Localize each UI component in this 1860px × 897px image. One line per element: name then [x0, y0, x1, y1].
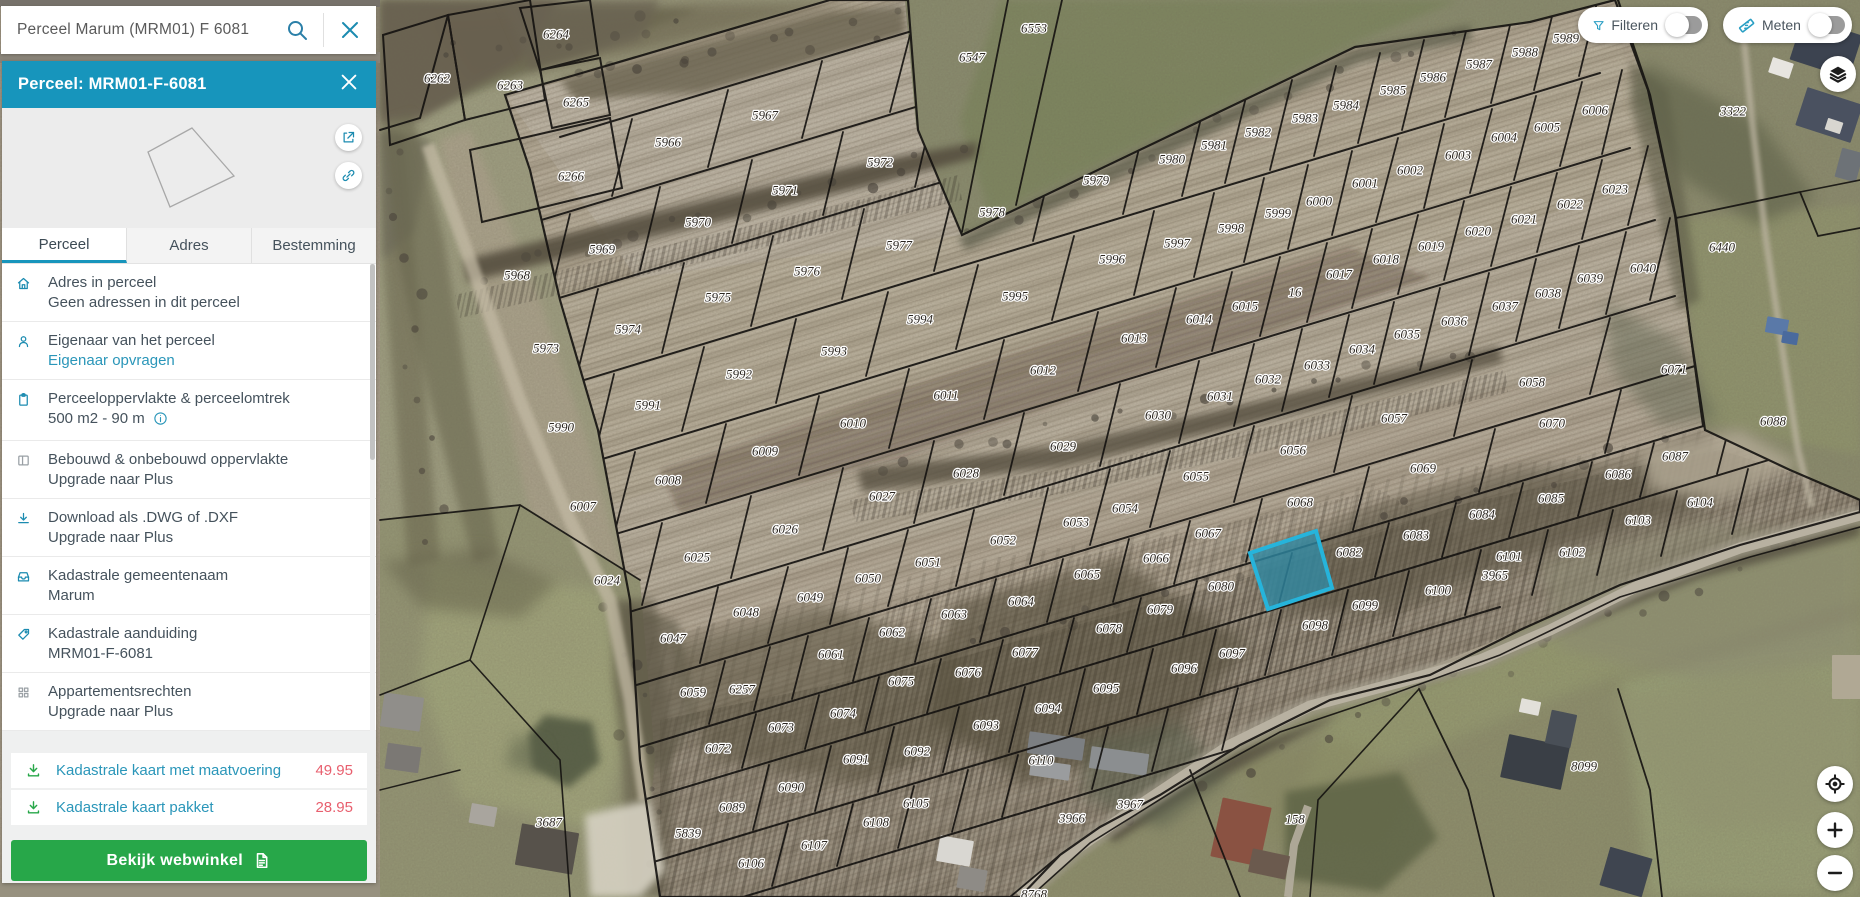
svg-text:6017: 6017: [1326, 267, 1353, 282]
svg-text:5966: 5966: [655, 135, 682, 150]
svg-text:6051: 6051: [915, 555, 941, 570]
svg-text:5977: 5977: [886, 238, 913, 253]
svg-text:5998: 5998: [1218, 221, 1245, 236]
svg-text:6547: 6547: [959, 50, 986, 65]
svg-text:5969: 5969: [589, 242, 616, 257]
svg-text:5982: 5982: [1245, 125, 1272, 140]
svg-text:6074: 6074: [830, 706, 857, 721]
svg-text:3965: 3965: [1481, 568, 1509, 583]
svg-text:6059: 6059: [680, 685, 707, 700]
svg-text:6092: 6092: [904, 744, 931, 759]
svg-text:6093: 6093: [973, 718, 1000, 733]
svg-text:6013: 6013: [1121, 331, 1148, 346]
svg-text:5992: 5992: [726, 367, 753, 382]
svg-text:5839: 5839: [675, 826, 702, 841]
svg-text:6265: 6265: [563, 95, 590, 110]
svg-text:6065: 6065: [1074, 567, 1101, 582]
svg-text:6262: 6262: [424, 71, 451, 86]
svg-text:6072: 6072: [705, 741, 732, 756]
svg-text:5991: 5991: [635, 398, 661, 413]
svg-text:6002: 6002: [1397, 163, 1424, 178]
svg-text:5999: 5999: [1265, 206, 1292, 221]
svg-text:6107: 6107: [801, 838, 828, 853]
svg-text:6100: 6100: [1425, 583, 1452, 598]
svg-text:5988: 5988: [1512, 45, 1539, 60]
svg-text:6073: 6073: [768, 720, 795, 735]
svg-text:6066: 6066: [1143, 551, 1170, 566]
svg-text:6056: 6056: [1280, 443, 1307, 458]
svg-text:6091: 6091: [843, 752, 869, 767]
svg-text:6064: 6064: [1008, 594, 1035, 609]
svg-text:6036: 6036: [1441, 314, 1468, 329]
svg-text:5981: 5981: [1201, 138, 1227, 153]
svg-text:6026: 6026: [772, 522, 799, 537]
svg-text:6029: 6029: [1050, 439, 1077, 454]
svg-text:6264: 6264: [543, 27, 570, 42]
svg-text:6008: 6008: [655, 473, 682, 488]
svg-text:5983: 5983: [1292, 111, 1319, 126]
svg-text:6028: 6028: [953, 466, 980, 481]
svg-text:5993: 5993: [821, 344, 848, 359]
svg-text:5971: 5971: [772, 183, 798, 198]
svg-text:6063: 6063: [941, 607, 968, 622]
svg-text:6023: 6023: [1602, 182, 1629, 197]
svg-text:6011: 6011: [933, 388, 958, 403]
svg-text:6005: 6005: [1534, 120, 1561, 135]
svg-text:6030: 6030: [1145, 408, 1172, 423]
svg-text:8099: 8099: [1571, 759, 1598, 774]
svg-text:5979: 5979: [1083, 173, 1110, 188]
svg-text:6009: 6009: [752, 444, 779, 459]
svg-text:6000: 6000: [1306, 194, 1333, 209]
svg-text:6033: 6033: [1304, 358, 1331, 373]
svg-text:6004: 6004: [1491, 130, 1518, 145]
svg-text:6052: 6052: [990, 533, 1017, 548]
svg-text:5973: 5973: [533, 341, 560, 356]
svg-text:6089: 6089: [719, 800, 746, 815]
svg-text:6007: 6007: [570, 499, 597, 514]
svg-text:6078: 6078: [1096, 621, 1123, 636]
svg-text:6039: 6039: [1577, 271, 1604, 286]
svg-text:6050: 6050: [855, 571, 882, 586]
svg-text:6085: 6085: [1538, 491, 1565, 506]
svg-text:6003: 6003: [1445, 148, 1472, 163]
svg-text:6068: 6068: [1287, 495, 1314, 510]
svg-text:6075: 6075: [888, 674, 915, 689]
svg-text:6014: 6014: [1186, 312, 1213, 327]
svg-text:6086: 6086: [1605, 467, 1632, 482]
svg-text:6106: 6106: [738, 856, 765, 871]
svg-text:3322: 3322: [1719, 104, 1747, 119]
svg-text:5986: 5986: [1420, 70, 1447, 85]
svg-text:6067: 6067: [1195, 526, 1222, 541]
svg-text:5985: 5985: [1380, 83, 1407, 98]
svg-text:6035: 6035: [1394, 327, 1421, 342]
svg-text:6024: 6024: [594, 573, 621, 588]
svg-text:6015: 6015: [1232, 299, 1259, 314]
svg-text:6053: 6053: [1063, 515, 1090, 530]
svg-text:5990: 5990: [548, 420, 575, 435]
svg-text:3967: 3967: [1116, 797, 1144, 812]
svg-text:6027: 6027: [869, 489, 896, 504]
svg-text:5974: 5974: [615, 322, 642, 337]
svg-text:6006: 6006: [1582, 103, 1609, 118]
svg-text:158: 158: [1285, 812, 1305, 827]
svg-text:6025: 6025: [684, 550, 711, 565]
svg-text:5978: 5978: [979, 205, 1006, 220]
svg-text:6070: 6070: [1539, 416, 1566, 431]
svg-text:6058: 6058: [1519, 375, 1546, 390]
svg-text:5987: 5987: [1466, 57, 1493, 72]
svg-text:6090: 6090: [778, 780, 805, 795]
svg-text:5976: 5976: [794, 264, 821, 279]
svg-text:5970: 5970: [685, 215, 712, 230]
svg-text:5967: 5967: [752, 108, 779, 123]
svg-text:5997: 5997: [1164, 236, 1191, 251]
svg-text:6103: 6103: [1625, 513, 1652, 528]
svg-text:6069: 6069: [1410, 461, 1437, 476]
svg-text:8768: 8768: [1021, 887, 1048, 897]
svg-text:6087: 6087: [1662, 449, 1689, 464]
svg-text:6018: 6018: [1373, 252, 1400, 267]
svg-text:5984: 5984: [1333, 98, 1360, 113]
svg-text:6095: 6095: [1093, 681, 1120, 696]
svg-text:6077: 6077: [1012, 645, 1039, 660]
svg-text:6040: 6040: [1630, 261, 1657, 276]
svg-text:6553: 6553: [1021, 21, 1048, 36]
svg-text:6020: 6020: [1465, 224, 1492, 239]
svg-text:6038: 6038: [1535, 286, 1562, 301]
svg-text:6097: 6097: [1219, 646, 1246, 661]
svg-text:6034: 6034: [1349, 342, 1376, 357]
svg-text:6080: 6080: [1208, 579, 1235, 594]
svg-text:6440: 6440: [1709, 240, 1736, 255]
svg-text:6057: 6057: [1381, 411, 1408, 426]
svg-text:6076: 6076: [955, 665, 982, 680]
svg-text:6110: 6110: [1028, 753, 1054, 768]
svg-text:6257: 6257: [729, 682, 756, 697]
svg-text:6079: 6079: [1147, 602, 1174, 617]
svg-text:3687: 3687: [535, 815, 563, 830]
svg-text:6022: 6022: [1557, 197, 1584, 212]
svg-text:6094: 6094: [1035, 701, 1062, 716]
svg-text:5980: 5980: [1159, 152, 1186, 167]
svg-text:6084: 6084: [1469, 507, 1496, 522]
svg-text:6062: 6062: [879, 625, 906, 640]
svg-text:6055: 6055: [1183, 469, 1210, 484]
svg-text:6032: 6032: [1255, 372, 1282, 387]
svg-text:3966: 3966: [1058, 811, 1086, 826]
svg-text:5996: 5996: [1099, 252, 1126, 267]
svg-text:6049: 6049: [797, 590, 824, 605]
svg-text:6082: 6082: [1336, 545, 1363, 560]
svg-text:6266: 6266: [558, 169, 585, 184]
svg-text:5989: 5989: [1553, 31, 1580, 46]
svg-text:5968: 5968: [504, 268, 531, 283]
svg-text:6054: 6054: [1112, 501, 1139, 516]
svg-text:6021: 6021: [1511, 212, 1537, 227]
svg-text:6096: 6096: [1171, 661, 1198, 676]
svg-text:5995: 5995: [1002, 289, 1029, 304]
svg-text:5975: 5975: [705, 290, 732, 305]
svg-text:6037: 6037: [1492, 299, 1519, 314]
svg-text:6105: 6105: [903, 796, 930, 811]
svg-text:6101: 6101: [1496, 549, 1522, 564]
svg-text:6083: 6083: [1403, 528, 1430, 543]
svg-text:6102: 6102: [1559, 545, 1586, 560]
svg-text:6098: 6098: [1302, 618, 1329, 633]
svg-text:6108: 6108: [863, 815, 890, 830]
svg-text:6031: 6031: [1207, 389, 1233, 404]
svg-text:6104: 6104: [1687, 495, 1714, 510]
svg-text:6061: 6061: [818, 647, 844, 662]
svg-text:16: 16: [1289, 285, 1303, 300]
svg-text:6099: 6099: [1352, 598, 1379, 613]
svg-text:6048: 6048: [733, 605, 760, 620]
svg-text:5972: 5972: [867, 155, 894, 170]
svg-text:6088: 6088: [1760, 414, 1787, 429]
svg-text:6071: 6071: [1661, 362, 1687, 377]
svg-text:6047: 6047: [660, 631, 687, 646]
svg-text:6012: 6012: [1030, 363, 1057, 378]
svg-text:5994: 5994: [907, 312, 934, 327]
svg-text:6263: 6263: [497, 78, 524, 93]
svg-text:6001: 6001: [1352, 176, 1378, 191]
svg-text:6010: 6010: [840, 416, 867, 431]
svg-text:6019: 6019: [1418, 239, 1445, 254]
